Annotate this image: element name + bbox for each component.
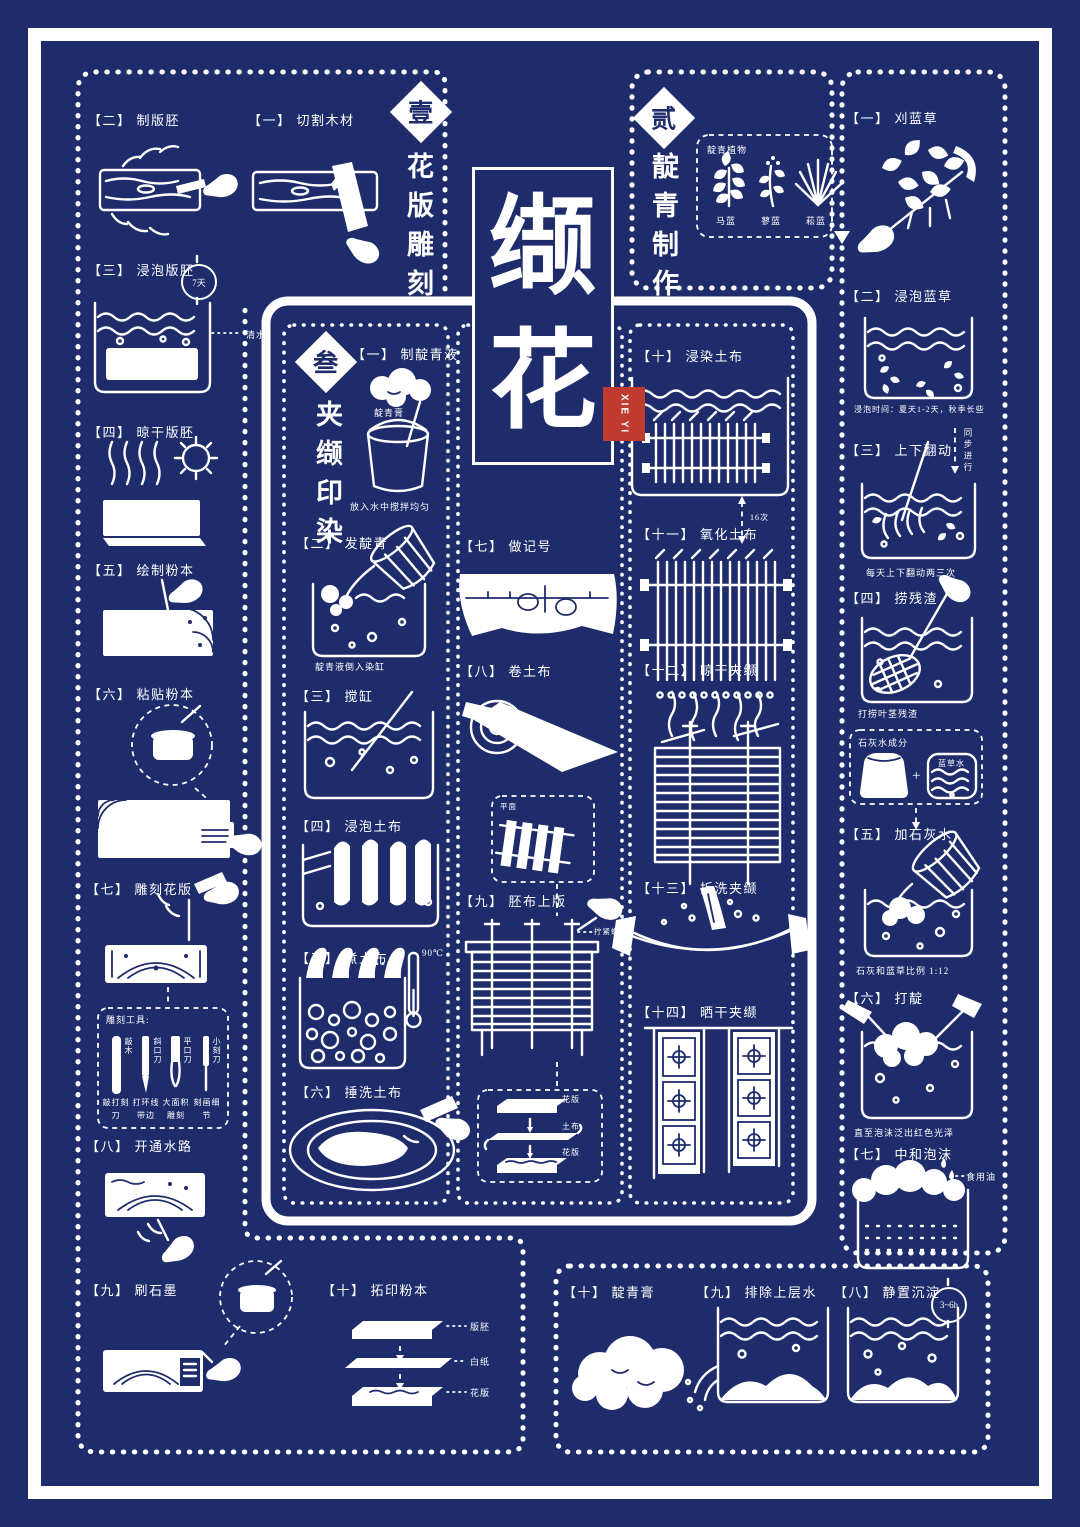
plant-name: 马蓝: [716, 214, 736, 227]
tool-name: 平口刀: [182, 1037, 193, 1064]
sync-note: 同步进行: [962, 428, 974, 474]
tool-use: 刻画细节: [193, 1097, 221, 1123]
tools-box-title: 雕刻工具:: [106, 1013, 150, 1026]
step-label: 【二】浸泡蓝草: [846, 286, 953, 305]
section2-title: 靛青制作: [644, 152, 683, 308]
plate-cloth-layers-illustration: [485, 1099, 581, 1173]
step-label: 【六】捶洗土布: [296, 1082, 403, 1101]
mark-cloth-illustration: [459, 574, 617, 636]
step-caption: 放入水中搅拌均匀: [350, 500, 430, 513]
drip-dry-stack-illustration: [655, 692, 780, 884]
plant-name: 菘蓝: [806, 214, 826, 227]
step-label: 【九】刷石墨: [86, 1280, 178, 1299]
oil-note: 食用油: [966, 1170, 996, 1183]
duration-badge: 3~6h: [931, 1287, 967, 1323]
step-label: 【十三】拆洗夹缬: [637, 878, 758, 897]
layer-note: 花版: [470, 1386, 490, 1399]
clamp-stack-illustration: [466, 891, 625, 1055]
lime-box-title: 石灰水成分: [858, 736, 908, 749]
step-label: 【五】绘制粉本: [88, 560, 195, 579]
repeat-note: 16次: [750, 512, 769, 523]
plus-sign: +: [912, 768, 921, 785]
step-label: 【三】浸泡版胚: [88, 260, 195, 279]
step-label: 【七】中和泡沫: [846, 1144, 953, 1163]
step-label: 【十四】晒干夹缬: [637, 1002, 758, 1021]
indigo-paste-illustration: [572, 1336, 684, 1410]
tool-name: 斜口刀: [152, 1037, 163, 1064]
indigo-plants-icons: [711, 150, 850, 244]
section1-title: 花版雕刻: [399, 152, 438, 308]
step-label: 【三】上下翻动: [846, 440, 953, 459]
title-char-1: 缬: [489, 195, 597, 303]
sun-dry-cloth-illustration: [645, 1028, 792, 1178]
layer-note: 土布: [562, 1121, 580, 1132]
step-label: 【九】排除上层水: [696, 1282, 817, 1301]
section1-border: [78, 72, 523, 1452]
step-label: 【十二】晾干夹缬: [637, 660, 758, 679]
drain-water-illustration: [686, 1308, 828, 1410]
step-caption: 直至泡沫泛出红色光泽: [854, 1126, 954, 1139]
step-label: 【八】卷土布: [460, 661, 552, 680]
plant-name: 蓼蓝: [761, 214, 781, 227]
tool-use: 打环线带边: [132, 1097, 160, 1123]
roll-cloth-illustration: [462, 701, 618, 772]
step-label: 【十】靛青膏: [563, 1282, 655, 1301]
soak-leaves-tank-illustration: [865, 318, 972, 399]
indigo-craft-poster: 壹 花版雕刻 【二】制版胚 【一】切割木材 【三】浸泡版胚 7天 清水 【四】晾…: [0, 0, 1080, 1527]
step-label: 【二】制版胚: [88, 110, 180, 129]
tool-name: 敲木: [123, 1037, 134, 1055]
soak-blank-tank-illustration: [95, 303, 242, 392]
artist-seal: XIE YI: [603, 387, 645, 441]
step-label: 【十一】氧化土布: [637, 524, 758, 543]
water-channel-illustration: [105, 1173, 205, 1269]
poster-main-title: 缬 花: [472, 167, 614, 465]
step-label: 【七】雕刻花版: [86, 879, 193, 898]
step-label: 【四】晾干版胚: [88, 422, 195, 441]
rub-layers-illustration: [345, 1321, 466, 1406]
step-label: 【六】粘贴粉本: [88, 684, 195, 703]
step-label: 【四】浸泡土布: [296, 816, 403, 835]
step-caption: 靛青液倒入染缸: [315, 660, 385, 673]
step-caption: 浸泡时间：夏天1-2天，秋季长些: [854, 404, 985, 415]
tool-name: 小刻刀: [211, 1037, 222, 1064]
add-lime-illustration: [865, 826, 987, 956]
title-char-2: 花: [489, 329, 597, 437]
soak-cloth-tank-illustration: [303, 839, 438, 926]
step-label: 【八】静置沉淀: [834, 1282, 941, 1301]
step-caption: 石灰和蓝草比例 1:12: [856, 964, 949, 977]
tool-use: 敲打刻刀: [102, 1097, 130, 1123]
step-label: 【八】开通水路: [86, 1136, 193, 1155]
paste-pot-illustration: [98, 706, 264, 858]
inset-note: 平面: [500, 801, 517, 812]
settle-tank-illustration: [848, 1308, 958, 1402]
step-label: 【九】胚布上版: [460, 891, 567, 910]
step-label: 【二】发靛青: [296, 533, 388, 552]
step-label: 【五】加石灰水: [846, 824, 953, 843]
plank-chisel-illustration: [100, 146, 240, 234]
stir-vat-illustration: [305, 692, 433, 798]
step-label: 【三】搅缸: [296, 686, 374, 705]
step-label: 【十】浸染土布: [637, 346, 744, 365]
temperature-note: 90℃: [422, 948, 444, 959]
beat-indigo-illustration: [842, 994, 982, 1118]
tool-use: 大面积雕刻: [162, 1097, 190, 1123]
duration-badge: 7天: [181, 264, 217, 300]
saw-wood-illustration: [253, 162, 383, 269]
layer-note: 花版: [562, 1147, 580, 1158]
tighten-note: 拧紧螺帽: [594, 926, 628, 937]
plants-box-title: 靛青植物: [707, 143, 747, 156]
dry-blank-sun-illustration: [103, 437, 217, 546]
pound-wash-illustration: [290, 1096, 473, 1190]
paste-note: 靛青膏: [374, 406, 404, 419]
step-label: 【一】切割木材: [248, 110, 355, 129]
step-label: 【一】刈蓝草: [846, 108, 938, 127]
step-label: 【七】做记号: [460, 536, 552, 555]
step-label: 【一】制靛青液: [352, 344, 459, 363]
step-label: 【十】拓印粉本: [322, 1280, 429, 1299]
lime-bag-label: 石灰: [872, 772, 892, 785]
water-note: 清水: [246, 328, 266, 341]
step-caption: 每天上下翻动两三次: [866, 566, 956, 579]
step-label: 【六】打靛: [846, 988, 924, 1007]
layer-note: 花版: [562, 1094, 580, 1105]
indigo-paste-cloud-icon: [370, 368, 431, 407]
sickle-harvest-illustration: [853, 136, 976, 260]
step-label: 【五】煮土布: [296, 948, 388, 967]
lime-water-label: 蓝草水: [938, 758, 965, 769]
step-label: 【四】捞残渣: [846, 588, 938, 607]
step-caption: 打捞叶茎残渣: [858, 707, 918, 720]
layer-note: 版胚: [470, 1320, 490, 1333]
layer-note: 白纸: [470, 1355, 490, 1368]
draw-pattern-illustration: [103, 576, 213, 656]
